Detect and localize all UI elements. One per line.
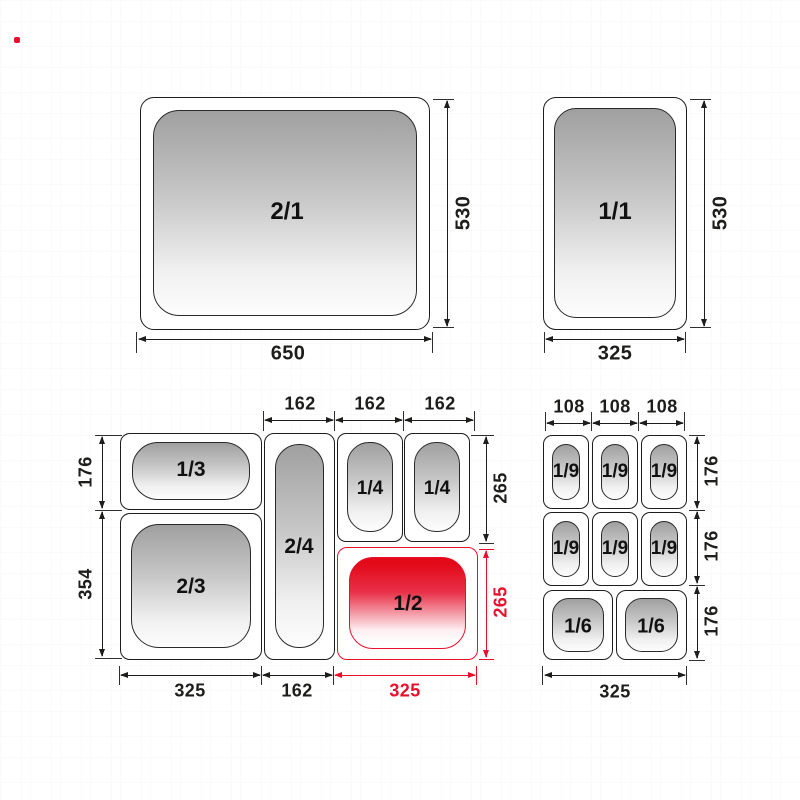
dimension-line-650 [139, 339, 431, 340]
pan-1-1-label: 1/1 [598, 198, 631, 226]
dim-label-650: 650 [271, 343, 306, 366]
dimension-line-325 [545, 675, 685, 676]
pan-1-9-label: 1/9 [553, 538, 579, 560]
pan-1-6-label: 1/6 [637, 616, 665, 639]
dimension-line-176 [697, 437, 698, 508]
pan-2-4-label: 2/4 [284, 535, 313, 559]
dimension-line-325-red [335, 675, 475, 676]
extension-line [542, 666, 543, 685]
dim-label-176: 176 [702, 455, 723, 486]
dimension-line-162 [265, 420, 333, 421]
dim-label-325-red: 325 [389, 681, 420, 702]
pan-1-6-label: 1/6 [564, 616, 592, 639]
dimension-line-176 [697, 587, 698, 658]
dim-label-325: 325 [174, 681, 205, 702]
extension-line [479, 543, 494, 544]
dimension-line-176 [102, 437, 103, 508]
dim-label-176: 176 [76, 456, 97, 487]
dim-label-176: 176 [702, 605, 723, 636]
dimension-line-108 [640, 423, 683, 424]
dim-label-265-red: 265 [491, 586, 512, 617]
pan-1-3-label: 1/3 [176, 458, 205, 482]
dimension-line-325 [546, 339, 684, 340]
extension-line [686, 666, 687, 685]
dim-label-325: 325 [599, 682, 630, 703]
red-marker [14, 37, 20, 43]
dim-label-325: 325 [598, 343, 633, 366]
pan-1-9-label: 1/9 [651, 461, 677, 483]
dimension-line-108 [547, 423, 590, 424]
extension-line [136, 332, 137, 353]
dimension-line-162 [336, 420, 402, 421]
dimension-line-162 [263, 675, 332, 676]
extension-line [690, 327, 711, 328]
dimension-line-530 [704, 101, 705, 326]
dim-label-108: 108 [599, 397, 630, 418]
pan-1-4-a-label: 1/4 [357, 478, 383, 500]
dimension-line-530 [447, 101, 448, 326]
dim-label-530: 530 [710, 196, 733, 231]
pan-2-3-label: 2/3 [176, 575, 205, 599]
dim-label-354: 354 [76, 568, 97, 599]
dimension-line-354 [102, 512, 103, 656]
dimension-line-108 [593, 423, 637, 424]
pan-2-1-label: 2/1 [270, 198, 303, 226]
extension-line [684, 412, 685, 431]
pan-1-9-label: 1/9 [651, 538, 677, 560]
dimension-line-265 [486, 437, 487, 541]
dimension-line-176 [697, 512, 698, 583]
dim-label-265: 265 [491, 472, 512, 503]
dim-label-162: 162 [284, 394, 315, 415]
dim-label-530: 530 [453, 196, 476, 231]
dim-label-176: 176 [702, 530, 723, 561]
extension-line [432, 332, 433, 353]
dim-label-108: 108 [646, 397, 677, 418]
dimension-line-325 [121, 675, 260, 676]
extension-line-red [476, 666, 477, 685]
dim-label-162: 162 [281, 681, 312, 702]
pan-1-4-b-label: 1/4 [424, 478, 450, 500]
pan-1-2-label: 1/2 [393, 592, 422, 616]
pan-1-9-label: 1/9 [553, 461, 579, 483]
extension-line [685, 332, 686, 353]
extension-line [689, 660, 705, 661]
dim-label-162: 162 [424, 394, 455, 415]
pan-1-9-label: 1/9 [602, 538, 628, 560]
dimension-line-265-red [486, 551, 487, 657]
dimension-line-162 [405, 420, 473, 421]
extension-line [95, 658, 122, 659]
extension-line [433, 327, 454, 328]
dim-label-162: 162 [354, 394, 385, 415]
extension-line-red [479, 659, 494, 660]
pan-1-9-label: 1/9 [602, 461, 628, 483]
dim-label-108: 108 [553, 397, 584, 418]
extension-line [474, 411, 475, 431]
